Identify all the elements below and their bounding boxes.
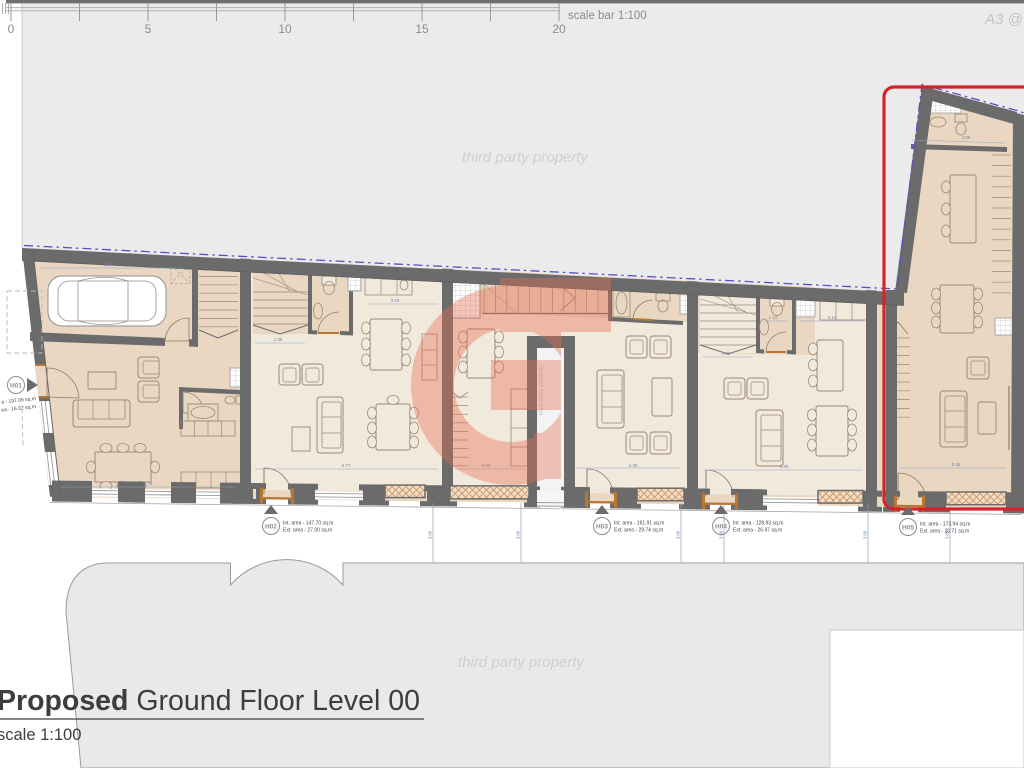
svg-text:third party property: third party property — [462, 149, 589, 166]
svg-text:0: 0 — [8, 22, 15, 36]
svg-text:3.88: 3.88 — [676, 530, 681, 539]
svg-text:4.28: 4.28 — [629, 463, 638, 468]
svg-text:Int. area - 161.91 sq.m: Int. area - 161.91 sq.m — [614, 521, 664, 527]
svg-text:2.06: 2.06 — [722, 351, 731, 356]
svg-text:Proposed Ground Floor Level 00: Proposed Ground Floor Level 00 — [0, 685, 420, 717]
svg-text:3.88: 3.88 — [863, 530, 868, 539]
svg-text:5: 5 — [145, 22, 152, 36]
svg-text:6.80: 6.80 — [780, 464, 789, 469]
svg-text:3.88: 3.88 — [428, 530, 433, 539]
svg-text:3.26: 3.26 — [391, 298, 400, 303]
svg-text:3.10: 3.10 — [828, 315, 837, 320]
svg-text:scale bar 1:100: scale bar 1:100 — [568, 10, 647, 22]
svg-text:H02: H02 — [265, 523, 277, 530]
svg-text:1.95: 1.95 — [274, 337, 283, 342]
svg-text:6.79: 6.79 — [144, 481, 153, 486]
svg-text:Ext. area - 26.47 sq.m: Ext. area - 26.47 sq.m — [733, 528, 782, 534]
svg-text:10: 10 — [278, 22, 292, 36]
svg-text:Ext. area - 20.71 sq.m: Ext. area - 20.71 sq.m — [920, 529, 969, 535]
svg-text:5.98: 5.98 — [103, 262, 112, 267]
svg-text:1.10: 1.10 — [769, 315, 778, 320]
svg-text:H03: H03 — [596, 523, 608, 530]
svg-text:Int. area - 173.94 sq.m: Int. area - 173.94 sq.m — [920, 522, 970, 528]
svg-text:5.36: 5.36 — [952, 462, 961, 467]
svg-text:6.77: 6.77 — [342, 463, 351, 468]
svg-text:15: 15 — [415, 22, 429, 36]
svg-text:H05: H05 — [902, 524, 914, 531]
svg-text:A3 @: A3 @ — [984, 11, 1023, 28]
svg-text:3.88: 3.88 — [516, 530, 521, 539]
svg-text:scale 1:100: scale 1:100 — [0, 726, 81, 744]
svg-text:Ext. area - 27.00 sq.m: Ext. area - 27.00 sq.m — [283, 528, 332, 534]
svg-text:Int. area - 128.93 sq.m: Int. area - 128.93 sq.m — [733, 521, 783, 527]
svg-text:third party property: third party property — [458, 654, 585, 671]
svg-text:Ext. area - 29.74 sq.m: Ext. area - 29.74 sq.m — [614, 528, 663, 534]
svg-text:20: 20 — [552, 22, 566, 36]
svg-text:Int. area - 147.70 sq.m: Int. area - 147.70 sq.m — [283, 521, 333, 527]
svg-text:H04: H04 — [715, 523, 727, 530]
svg-text:H01: H01 — [10, 382, 22, 389]
svg-text:3.08: 3.08 — [962, 135, 971, 140]
